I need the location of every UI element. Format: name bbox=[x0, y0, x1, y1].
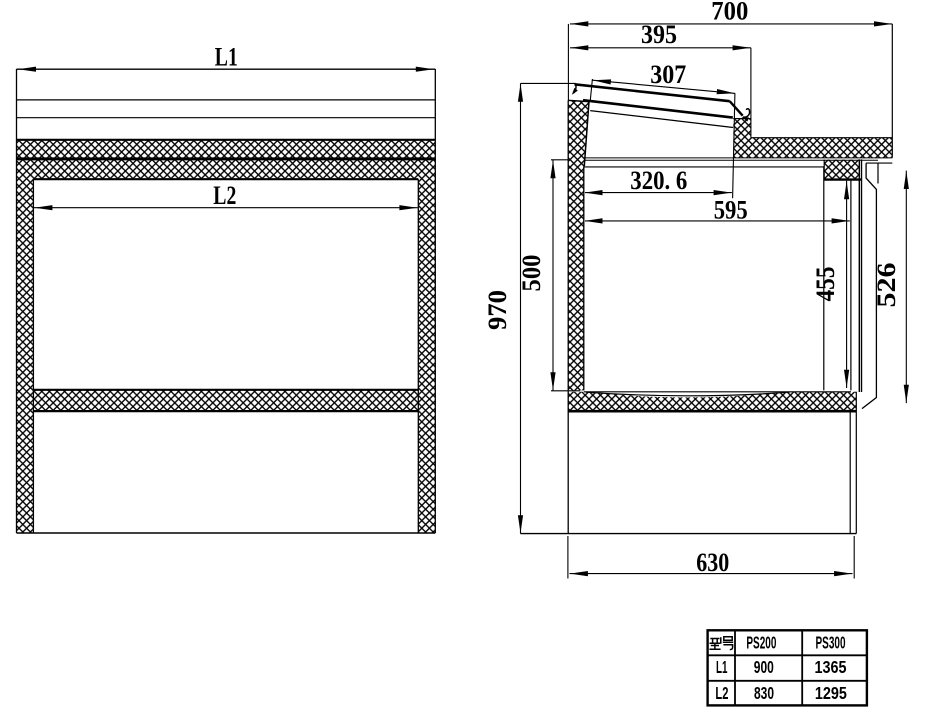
svg-text:PS200: PS200 bbox=[746, 633, 776, 653]
svg-text:L1: L1 bbox=[716, 657, 728, 677]
svg-text:307: 307 bbox=[650, 60, 686, 89]
svg-text:526: 526 bbox=[872, 263, 901, 308]
svg-text:630: 630 bbox=[696, 548, 729, 577]
svg-text:L2: L2 bbox=[715, 683, 728, 703]
svg-text:395: 395 bbox=[641, 20, 677, 49]
svg-text:700: 700 bbox=[711, 0, 748, 26]
svg-text:830: 830 bbox=[754, 683, 774, 703]
svg-text:1295: 1295 bbox=[815, 683, 847, 703]
svg-text:1365: 1365 bbox=[815, 657, 847, 677]
svg-text:500: 500 bbox=[517, 255, 546, 292]
svg-text:970: 970 bbox=[483, 290, 512, 330]
svg-text:PS300: PS300 bbox=[816, 633, 846, 653]
svg-text:320. 6: 320. 6 bbox=[630, 166, 687, 195]
svg-text:455: 455 bbox=[811, 267, 840, 302]
svg-text:L1: L1 bbox=[215, 43, 238, 72]
svg-text:900: 900 bbox=[754, 657, 774, 677]
svg-text:L2: L2 bbox=[213, 181, 236, 210]
svg-text:595: 595 bbox=[714, 196, 748, 225]
